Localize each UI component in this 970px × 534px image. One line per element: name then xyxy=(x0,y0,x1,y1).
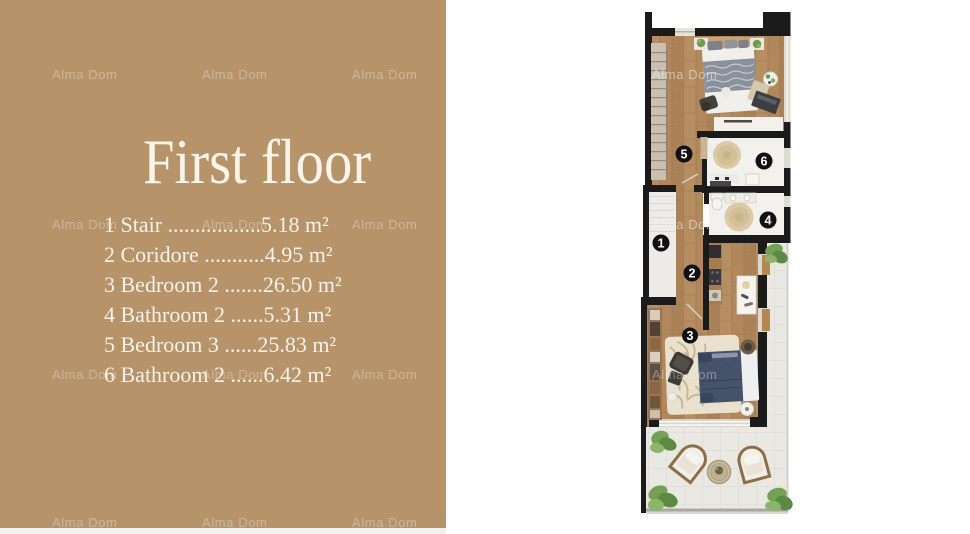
svg-text:Alma Dom: Alma Dom xyxy=(652,217,717,232)
svg-text:2: 2 xyxy=(689,267,696,281)
svg-text:Alma Dom: Alma Dom xyxy=(652,367,717,382)
svg-text:6: 6 xyxy=(761,155,768,169)
svg-text:3: 3 xyxy=(687,329,694,343)
svg-text:5: 5 xyxy=(681,148,688,162)
svg-text:4: 4 xyxy=(765,214,772,228)
svg-text:Alma Dom: Alma Dom xyxy=(652,67,717,82)
svg-text:1: 1 xyxy=(658,237,665,251)
